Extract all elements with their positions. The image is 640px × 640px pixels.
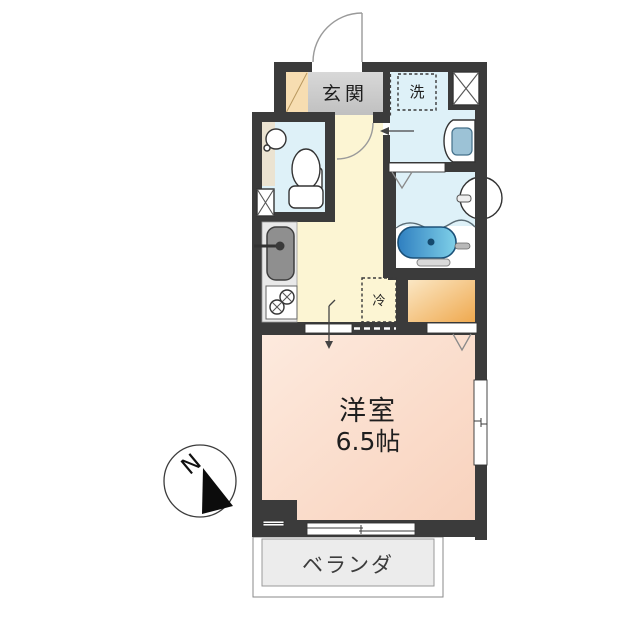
washbasin-icon [444,120,475,162]
closet-floor [408,280,475,322]
entrance-label: 玄関 [322,83,368,105]
compass: N [164,445,236,517]
wall [325,122,335,222]
kitchen-sink-icon [267,227,294,280]
floor-plan-drawing: 玄関 洗 冷 洋室 6.5帖 ベランダ N [0,0,640,640]
main-room-size-label: 6.5帖 [336,427,401,456]
gas-stove-icon [266,286,297,319]
wall [475,62,487,540]
refrigerator-label: 冷 [372,294,385,309]
closet-door [427,323,477,333]
bathtub-drain [428,239,435,246]
shower-handle [457,195,471,202]
entrance-doorway [312,62,362,72]
floor-plan-page: 玄関 洗 冷 洋室 6.5帖 ベランダ N [0,0,640,640]
faucet-knob [276,242,285,251]
pipe-shaft-icon [257,189,274,216]
window-slit [263,521,284,526]
bath-sill [417,259,450,266]
bathtub-icon [398,227,456,258]
wall [383,172,396,278]
laundry-label: 洗 [409,83,424,101]
window-balcony [307,523,415,535]
main-room-label: 洋室 [339,396,397,427]
window-right [474,380,487,465]
balcony-label: ベランダ [302,553,394,577]
entrance-door-swing-icon [313,13,362,62]
wall [373,112,383,123]
hand-basin-spout [264,145,270,151]
pipe-shaft-icon [453,72,479,105]
bathtub-handle [455,243,470,249]
wall [383,62,390,123]
hallway-floor [335,115,383,322]
wall [274,62,286,118]
wall [252,112,335,122]
bathroom-door [389,163,445,172]
